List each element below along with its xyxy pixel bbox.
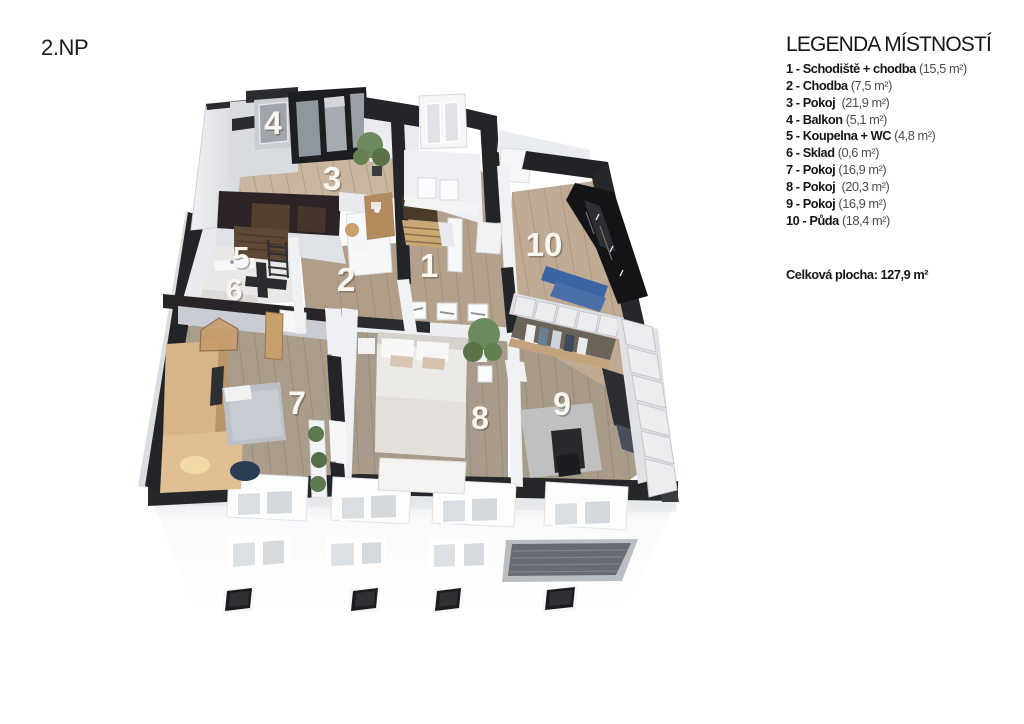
- svg-text:2: 2: [337, 261, 355, 298]
- svg-text:4: 4: [264, 105, 282, 141]
- svg-text:6: 6: [225, 272, 242, 307]
- svg-text:7: 7: [288, 385, 306, 421]
- svg-text:10: 10: [526, 226, 563, 263]
- svg-text:9: 9: [553, 386, 571, 422]
- svg-text:1: 1: [420, 247, 438, 284]
- svg-text:3: 3: [323, 160, 341, 197]
- svg-text:5: 5: [232, 240, 249, 275]
- svg-text:8: 8: [471, 400, 489, 436]
